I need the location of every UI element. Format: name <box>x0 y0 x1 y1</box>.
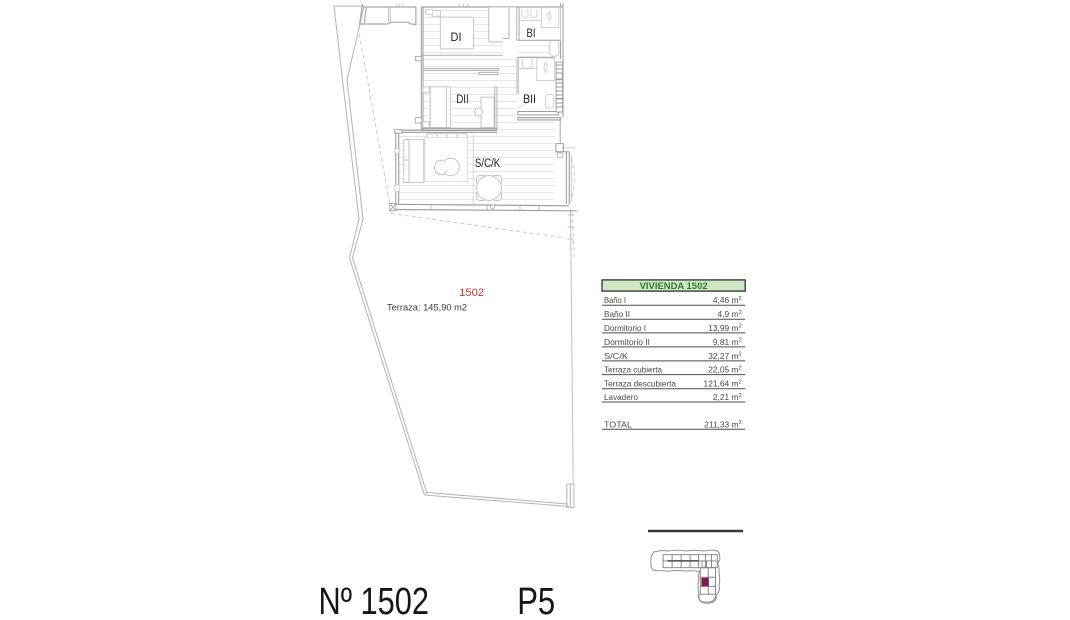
svg-text:DI: DI <box>451 32 462 44</box>
svg-text:VIVIENDA 1502: VIVIENDA 1502 <box>640 281 708 291</box>
svg-text:Terraza descubierta: Terraza descubierta <box>604 379 676 389</box>
svg-text:22,05 m2: 22,05 m2 <box>708 365 742 375</box>
svg-text:TOTAL: TOTAL <box>604 419 632 429</box>
svg-text:BI: BI <box>527 28 536 40</box>
svg-text:Lavadero: Lavadero <box>604 392 638 402</box>
svg-text:BII: BII <box>523 94 536 106</box>
svg-text:Terraza: 145,90 m2: Terraza: 145,90 m2 <box>387 303 467 313</box>
svg-text:Nº 1502: Nº 1502 <box>319 581 430 620</box>
svg-text:Dormitorio I: Dormitorio I <box>604 323 646 333</box>
svg-text:P5: P5 <box>517 581 555 620</box>
svg-text:9,81 m2: 9,81 m2 <box>713 337 742 347</box>
svg-text:DII: DII <box>456 94 468 106</box>
svg-text:Terraza cubierta: Terraza cubierta <box>604 365 662 375</box>
svg-text:Dormitorio II: Dormitorio II <box>604 337 650 347</box>
svg-text:1502: 1502 <box>459 287 484 299</box>
svg-text:32,27 m2: 32,27 m2 <box>708 351 742 361</box>
svg-text:211,33 m2: 211,33 m2 <box>704 419 742 429</box>
svg-text:2,21 m2: 2,21 m2 <box>713 392 742 402</box>
svg-text:13,99 m2: 13,99 m2 <box>708 323 742 333</box>
svg-text:S/C/K: S/C/K <box>604 351 628 361</box>
svg-text:Baño I: Baño I <box>604 295 626 305</box>
svg-text:Baño II: Baño II <box>604 309 630 319</box>
svg-text:4,9 m2: 4,9 m2 <box>718 309 742 319</box>
svg-text:S/C/K: S/C/K <box>475 158 501 170</box>
svg-text:4,46 m2: 4,46 m2 <box>713 295 742 305</box>
svg-text:121,64 m2: 121,64 m2 <box>704 379 742 389</box>
